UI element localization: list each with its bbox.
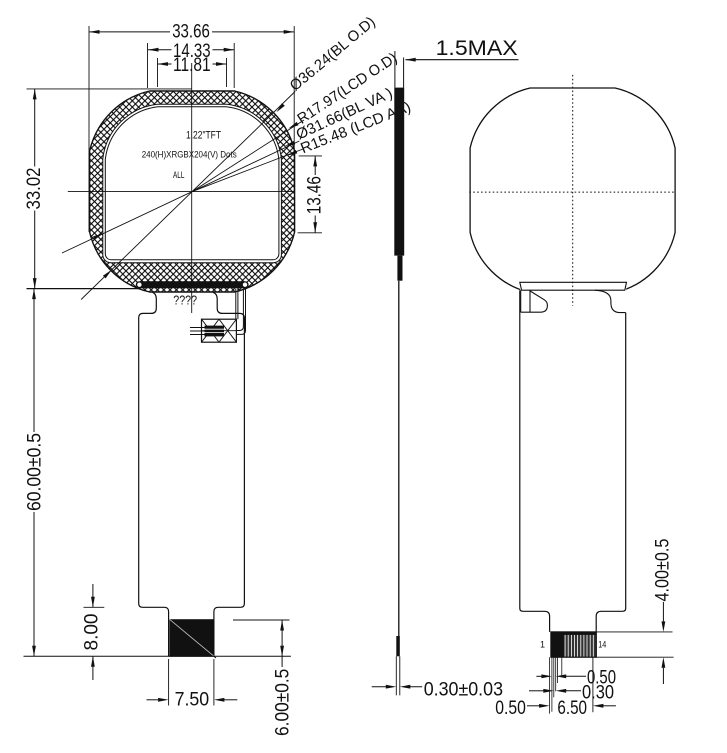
- svg-text:4.00±0.5: 4.00±0.5: [652, 539, 673, 602]
- svg-text:14: 14: [598, 639, 606, 649]
- svg-text:33.02: 33.02: [24, 168, 45, 210]
- svg-text:1: 1: [540, 639, 545, 649]
- svg-text:33.66: 33.66: [172, 21, 210, 42]
- svg-text:0.30±0.03: 0.30±0.03: [424, 678, 503, 700]
- svg-text:ALL: ALL: [173, 170, 184, 180]
- svg-text:????: ????: [173, 292, 197, 307]
- svg-text:1.22"TFT: 1.22"TFT: [186, 130, 221, 142]
- svg-text:11.81: 11.81: [173, 55, 211, 76]
- svg-text:240(H)XRGBX204(V) Dots: 240(H)XRGBX204(V) Dots: [142, 150, 237, 161]
- svg-text:13.46: 13.46: [305, 176, 326, 214]
- svg-text:60.00±0.5: 60.00±0.5: [25, 433, 46, 511]
- svg-text:1.5MAX: 1.5MAX: [436, 37, 518, 60]
- svg-text:6.00±0.5: 6.00±0.5: [273, 669, 294, 736]
- svg-text:6.50: 6.50: [557, 698, 587, 719]
- svg-text:0.50: 0.50: [495, 698, 526, 719]
- svg-text:8.00: 8.00: [81, 614, 102, 651]
- svg-text:7.50: 7.50: [175, 690, 210, 711]
